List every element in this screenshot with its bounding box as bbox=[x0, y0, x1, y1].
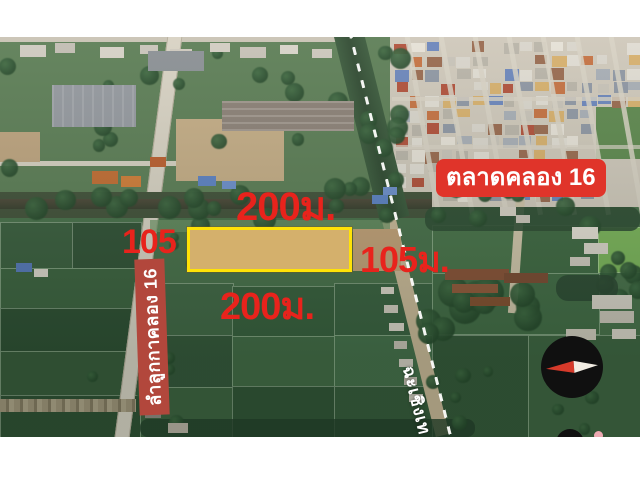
map-building bbox=[16, 263, 32, 272]
map-building bbox=[472, 124, 484, 132]
map-building-roof bbox=[52, 85, 136, 127]
map-field bbox=[0, 222, 74, 270]
map-building bbox=[500, 207, 516, 216]
map-building bbox=[222, 181, 236, 189]
map-building bbox=[198, 176, 216, 186]
map-field bbox=[0, 308, 142, 353]
map-tree bbox=[483, 366, 494, 377]
map-building bbox=[627, 69, 640, 79]
map-building bbox=[567, 109, 578, 119]
map-tree bbox=[620, 262, 637, 279]
map-building bbox=[427, 123, 439, 134]
dimension-label-bottom: 200ม. bbox=[220, 288, 314, 326]
dimension-label-left: 105 bbox=[122, 225, 176, 259]
letterbox-bottom bbox=[0, 437, 640, 480]
map-building-roof bbox=[222, 101, 354, 131]
map-building bbox=[148, 51, 204, 71]
map-tree bbox=[514, 304, 541, 331]
map-building bbox=[412, 150, 425, 161]
map-building bbox=[394, 341, 407, 349]
map-building bbox=[384, 305, 398, 313]
map-tree bbox=[91, 187, 111, 207]
map-tree bbox=[469, 210, 486, 227]
land-plot-outline bbox=[187, 227, 352, 272]
street-name-label: ลำลูกกาคลอง 16 bbox=[134, 259, 169, 416]
map-building bbox=[427, 42, 439, 51]
dimension-label-right: 105ม. bbox=[360, 242, 449, 278]
map-building bbox=[516, 215, 530, 223]
map-tree bbox=[556, 197, 574, 215]
map-building bbox=[121, 176, 141, 187]
map-building bbox=[592, 295, 632, 309]
map-tree bbox=[184, 188, 204, 208]
map-building bbox=[396, 151, 407, 160]
map-building bbox=[240, 47, 266, 58]
compass-icon bbox=[541, 336, 603, 398]
map-street bbox=[392, 145, 640, 149]
map-tree bbox=[579, 423, 590, 434]
map-building bbox=[551, 42, 563, 51]
map-tree bbox=[281, 71, 295, 85]
map-building bbox=[470, 297, 510, 306]
map-building bbox=[92, 171, 118, 184]
map-building bbox=[597, 55, 607, 64]
map-building bbox=[534, 109, 548, 118]
map-building bbox=[397, 82, 408, 92]
map-building bbox=[552, 56, 567, 66]
map-building bbox=[410, 164, 424, 174]
map-building bbox=[452, 284, 498, 293]
map-building bbox=[425, 70, 439, 81]
map-tree bbox=[25, 197, 48, 220]
map-building bbox=[427, 57, 442, 67]
map-building bbox=[210, 43, 230, 52]
map-building bbox=[312, 49, 332, 58]
map-building bbox=[584, 243, 608, 254]
map-building bbox=[411, 43, 425, 52]
map-dirt-track bbox=[0, 399, 136, 412]
map-tree bbox=[452, 415, 467, 430]
map-building bbox=[535, 82, 549, 91]
map-tree bbox=[120, 189, 138, 207]
map-building bbox=[572, 227, 598, 239]
map-building bbox=[505, 125, 520, 135]
map-building bbox=[520, 70, 532, 80]
map-field bbox=[0, 268, 142, 310]
map-tree bbox=[388, 172, 403, 187]
map-building bbox=[567, 82, 577, 90]
map-field bbox=[232, 336, 336, 388]
map-tree bbox=[552, 404, 564, 416]
map-building bbox=[34, 269, 48, 277]
map-building bbox=[395, 70, 409, 81]
market-name-label: ตลาดคลอง 16 bbox=[436, 159, 606, 197]
map-building bbox=[280, 45, 298, 54]
dimension-label-top: 200ม. bbox=[236, 187, 335, 227]
map-building bbox=[598, 84, 609, 93]
map-building bbox=[629, 55, 640, 65]
map-building bbox=[456, 57, 470, 68]
map-building bbox=[55, 43, 75, 53]
letterbox-top bbox=[0, 0, 640, 37]
map-building bbox=[534, 125, 548, 134]
map-tree bbox=[431, 208, 446, 223]
map-tree bbox=[1, 159, 19, 177]
map-building bbox=[520, 82, 532, 90]
map-building bbox=[457, 69, 471, 79]
map-building bbox=[100, 47, 124, 58]
map-building bbox=[381, 287, 394, 294]
map-building bbox=[372, 195, 388, 204]
map-tree bbox=[292, 133, 304, 145]
map-building bbox=[596, 69, 610, 80]
map-building bbox=[600, 311, 634, 323]
map-building bbox=[628, 82, 640, 90]
map-building bbox=[445, 269, 509, 280]
map-building bbox=[490, 83, 501, 94]
map-tree bbox=[285, 83, 304, 102]
map-building bbox=[504, 273, 548, 283]
screenshot-frame: 200ม. 200ม. 105 105ม. ตลาดคลอง 16 ลำลูกก… bbox=[0, 0, 640, 480]
map-tree bbox=[211, 134, 226, 149]
map-building bbox=[504, 111, 515, 120]
map-building bbox=[520, 42, 532, 52]
map-building bbox=[20, 45, 46, 57]
map-building bbox=[612, 329, 636, 339]
map-building bbox=[412, 178, 425, 187]
map-building bbox=[570, 257, 590, 266]
map-building bbox=[389, 323, 404, 331]
street-name-text: ลำลูกกาคลอง 16 bbox=[135, 268, 169, 407]
map-building bbox=[456, 109, 470, 117]
map-dirt bbox=[0, 132, 40, 162]
map-building bbox=[150, 157, 166, 167]
map-tree bbox=[450, 392, 460, 402]
map-tree bbox=[510, 282, 535, 307]
map-building bbox=[168, 423, 188, 433]
map-building bbox=[427, 111, 438, 120]
map-tree bbox=[207, 201, 222, 216]
map-tree bbox=[158, 196, 181, 219]
map-street bbox=[392, 97, 640, 101]
map-treeline bbox=[425, 207, 640, 231]
satellite-map: 200ม. 200ม. 105 105ม. ตลาดคลอง 16 ลำลูกก… bbox=[0, 37, 640, 437]
map-building bbox=[627, 43, 640, 55]
map-building bbox=[503, 84, 513, 92]
